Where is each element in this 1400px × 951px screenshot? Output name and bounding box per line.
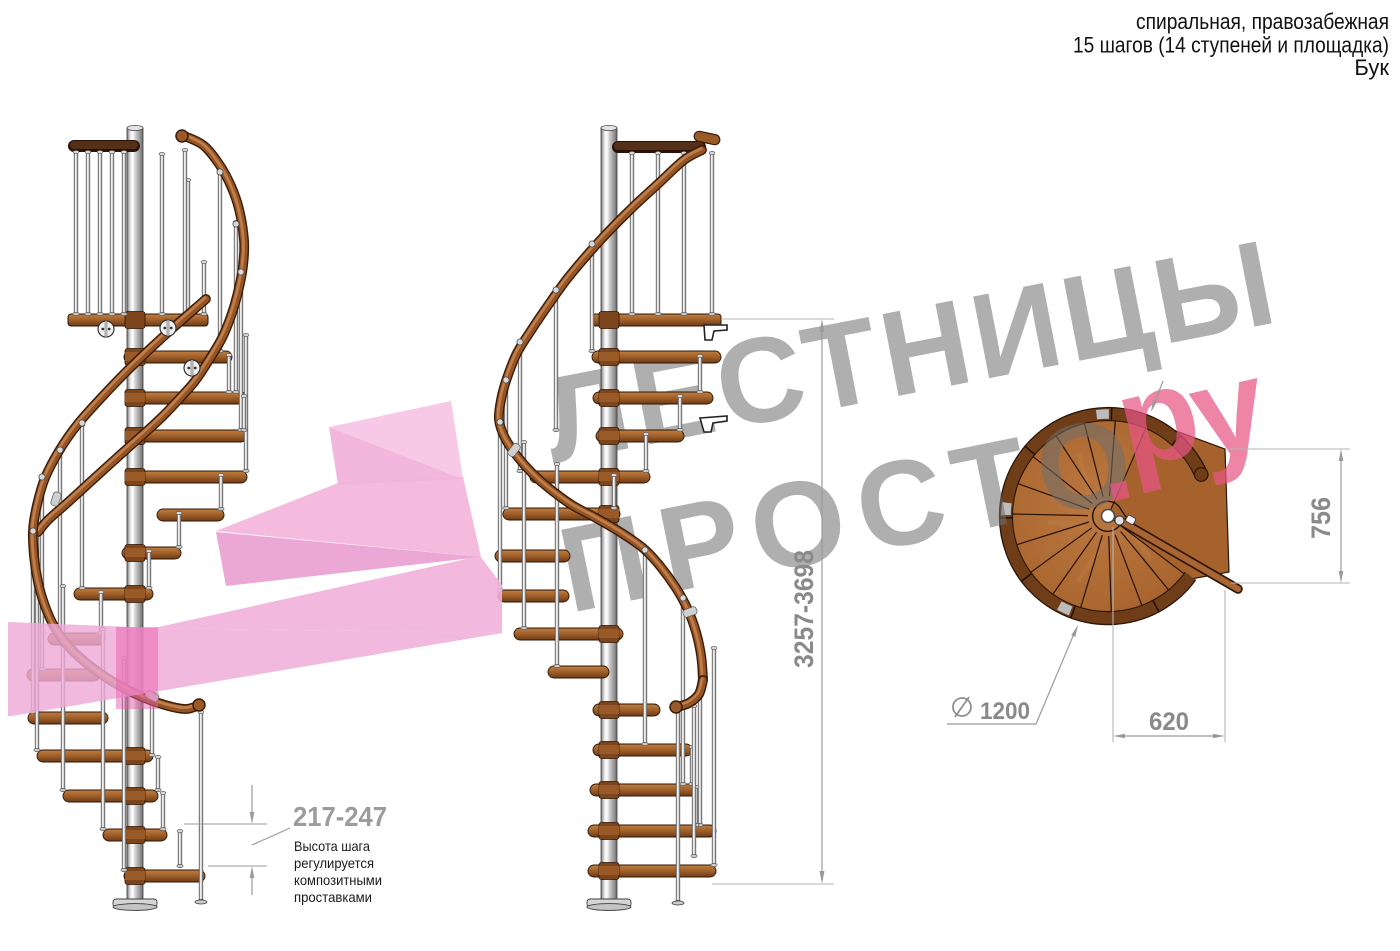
svg-text:проставками: проставками: [294, 889, 372, 905]
svg-text:620: 620: [1149, 708, 1189, 736]
svg-text:1200: 1200: [980, 698, 1030, 725]
svg-text:спиральная, правозабежная: спиральная, правозабежная: [1136, 9, 1389, 34]
svg-text:регулируется: регулируется: [294, 855, 374, 871]
svg-text:Высота шага: Высота шага: [294, 838, 370, 854]
svg-text:15 шагов (14 ступеней и площад: 15 шагов (14 ступеней и площадка): [1073, 33, 1389, 58]
svg-text:Бук: Бук: [1354, 55, 1389, 80]
svg-text:756: 756: [1306, 497, 1336, 539]
svg-text:композитными: композитными: [294, 872, 382, 888]
svg-text:3257-3698: 3257-3698: [789, 550, 819, 668]
svg-text:217-247: 217-247: [293, 801, 387, 832]
